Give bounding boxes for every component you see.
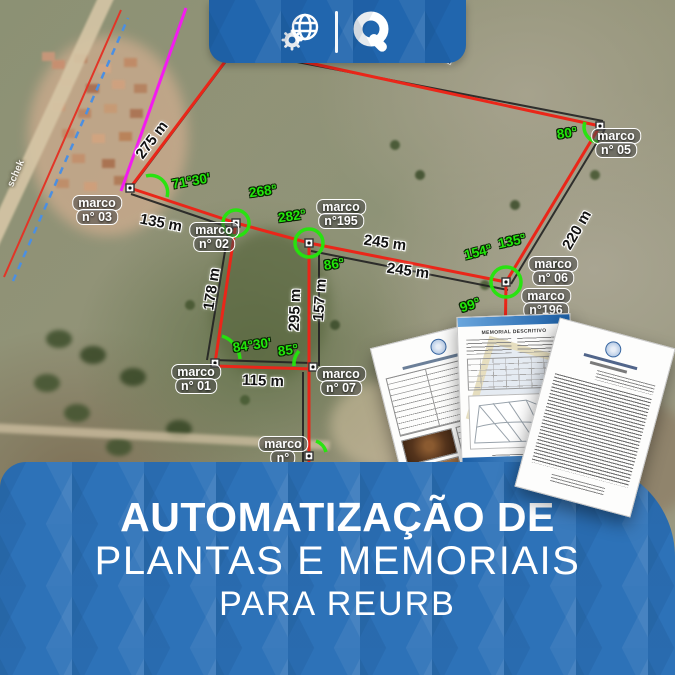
terrain-patch — [28, 36, 188, 236]
document-seal-icon — [603, 340, 623, 360]
trees-dots — [390, 140, 400, 150]
road-bottom — [0, 423, 330, 450]
document-paragraph-lines — [531, 373, 651, 488]
banner-title-line3: PARA REURB — [0, 583, 675, 626]
terrain-patch — [210, 230, 330, 380]
qgis-logo-icon — [351, 9, 397, 55]
header-logo-badge — [209, 0, 466, 63]
document-seal-icon — [429, 337, 448, 356]
document-text-block — [466, 338, 511, 355]
promo-graphic: schek — [0, 0, 675, 675]
globe-gear-icon — [278, 10, 322, 54]
document-title: MEMORIAL DESCRITIVO — [466, 327, 562, 336]
banner-title-line2: PLANTAS E MEMORIAIS — [0, 539, 675, 583]
houses-cluster — [42, 52, 55, 61]
logo-divider — [335, 11, 338, 53]
tree-clumps — [46, 330, 72, 348]
